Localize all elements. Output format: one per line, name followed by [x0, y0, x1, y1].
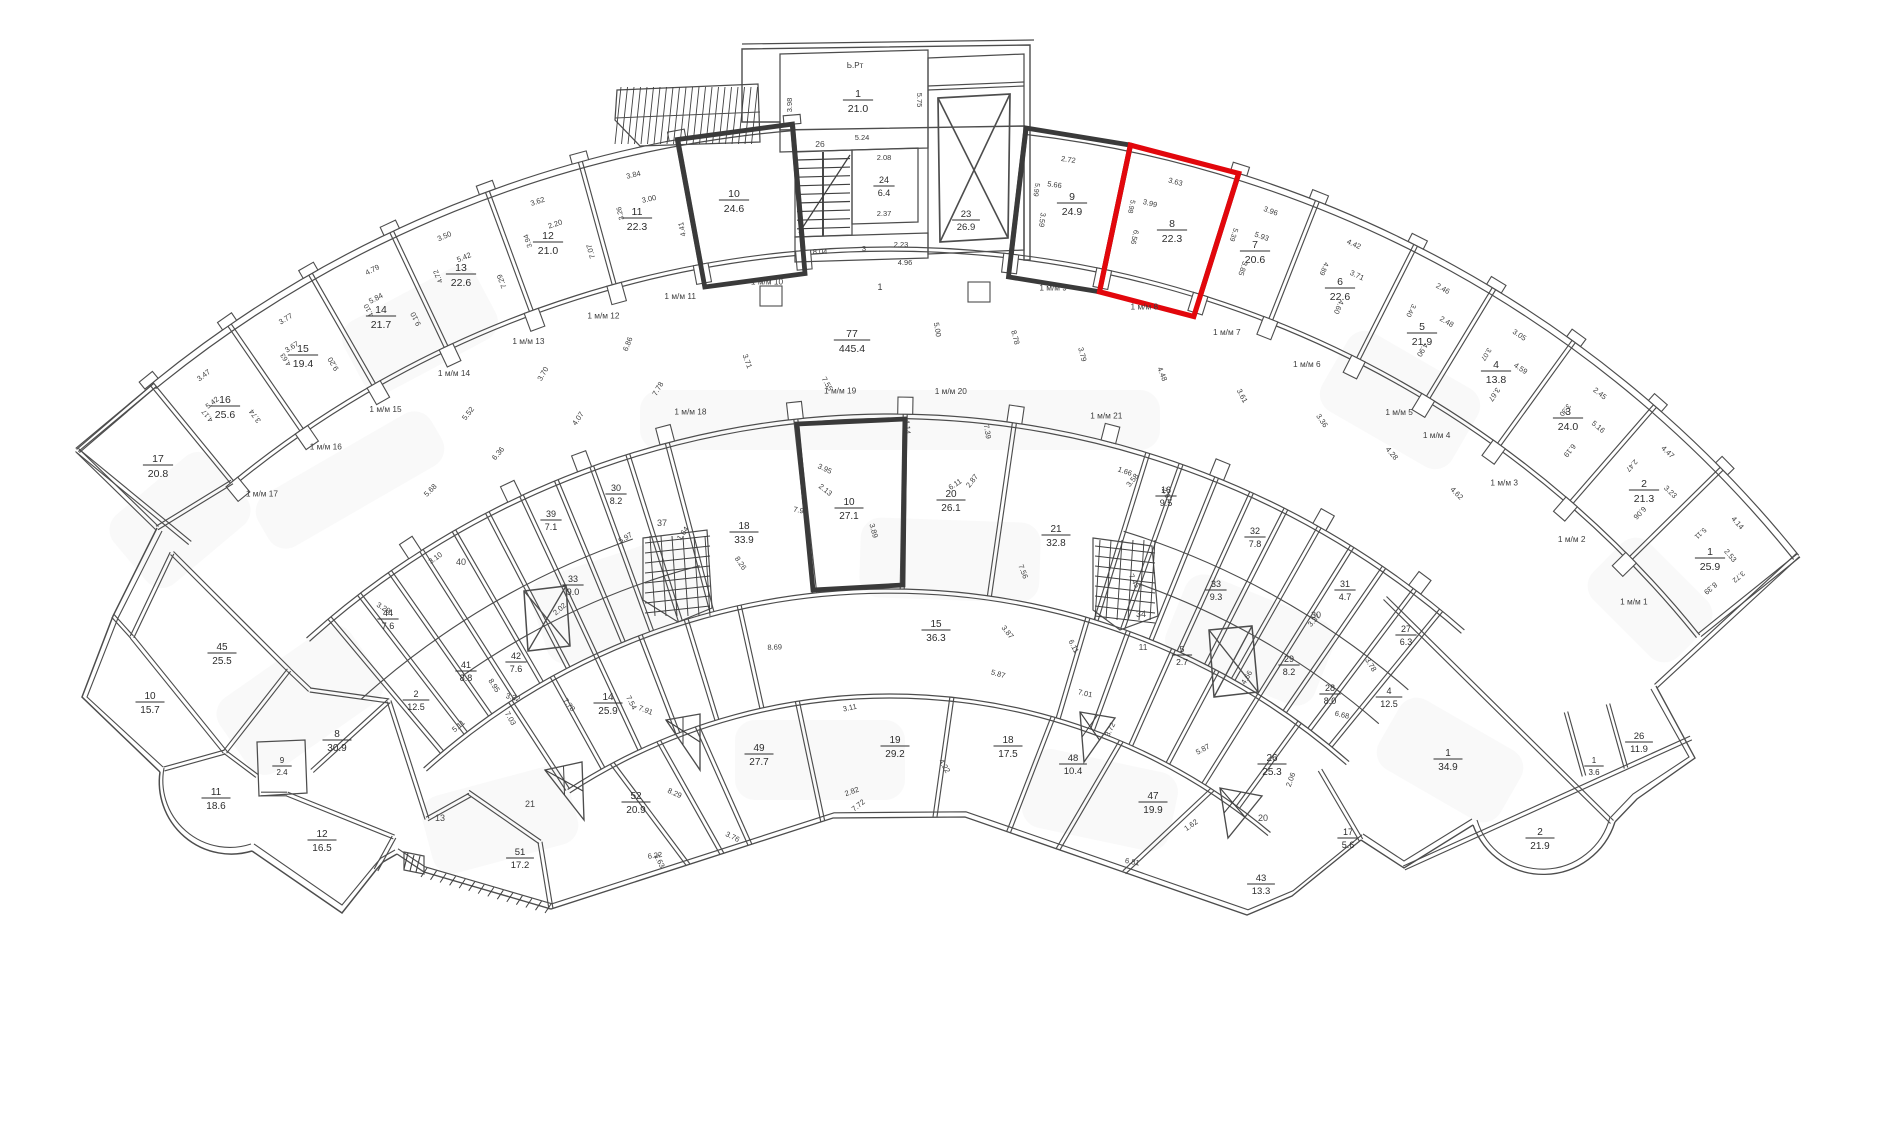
svg-text:1: 1: [1707, 546, 1713, 558]
svg-text:5.24: 5.24: [855, 133, 870, 142]
svg-text:22.6: 22.6: [451, 277, 472, 289]
svg-text:20.9: 20.9: [626, 805, 646, 816]
svg-text:42: 42: [511, 651, 521, 661]
svg-text:34.9: 34.9: [1438, 762, 1458, 773]
svg-text:77: 77: [846, 328, 858, 340]
svg-text:32.8: 32.8: [1046, 538, 1066, 549]
svg-text:6: 6: [1337, 276, 1343, 288]
svg-text:1 м/м 10: 1 м/м 10: [751, 277, 784, 287]
svg-text:28: 28: [1325, 683, 1335, 693]
svg-text:445.4: 445.4: [839, 343, 865, 355]
svg-text:2: 2: [1641, 478, 1647, 490]
svg-text:31: 31: [1340, 579, 1350, 589]
svg-text:1 м/м 1: 1 м/м 1: [1620, 596, 1648, 606]
svg-text:8.0: 8.0: [1324, 696, 1337, 706]
svg-text:21: 21: [1050, 524, 1062, 535]
svg-text:1: 1: [877, 282, 882, 292]
svg-text:15: 15: [930, 619, 942, 630]
svg-text:20: 20: [1258, 813, 1268, 823]
svg-text:1: 1: [855, 88, 861, 100]
svg-text:36.3: 36.3: [926, 633, 946, 644]
svg-text:18.6: 18.6: [206, 801, 226, 812]
svg-text:11: 11: [211, 787, 222, 798]
svg-text:7.8: 7.8: [1249, 539, 1262, 549]
svg-text:8.69: 8.69: [767, 642, 782, 652]
svg-text:34: 34: [1136, 609, 1146, 619]
svg-text:21.9: 21.9: [1530, 841, 1550, 852]
svg-text:8: 8: [1169, 218, 1175, 230]
svg-text:39: 39: [546, 509, 556, 519]
svg-text:1 м/м 3: 1 м/м 3: [1490, 478, 1518, 488]
svg-text:3.6: 3.6: [1588, 768, 1600, 777]
svg-text:22.3: 22.3: [1162, 233, 1183, 245]
svg-text:9: 9: [280, 756, 285, 765]
svg-text:21.7: 21.7: [371, 319, 392, 331]
svg-text:14: 14: [375, 304, 387, 316]
svg-text:1 м/м 6: 1 м/м 6: [1293, 359, 1321, 369]
svg-text:49: 49: [753, 743, 765, 754]
svg-text:13.3: 13.3: [1252, 886, 1271, 897]
svg-text:12: 12: [316, 829, 328, 840]
svg-text:29: 29: [1284, 654, 1294, 664]
svg-text:1 м/м 13: 1 м/м 13: [512, 336, 545, 346]
svg-text:19.9: 19.9: [1143, 805, 1163, 816]
svg-text:1 м/м 18: 1 м/м 18: [674, 407, 707, 417]
svg-text:24.9: 24.9: [1062, 206, 1083, 218]
svg-text:5: 5: [1180, 644, 1185, 654]
svg-text:19: 19: [889, 735, 901, 746]
svg-text:19.4: 19.4: [293, 358, 314, 370]
svg-text:9.0: 9.0: [567, 587, 580, 597]
svg-text:1 м/м 2: 1 м/м 2: [1558, 534, 1586, 544]
svg-text:1 м/м 20: 1 м/м 20: [935, 386, 968, 396]
svg-text:23: 23: [961, 209, 972, 220]
svg-text:43: 43: [1256, 873, 1267, 884]
svg-text:17.5: 17.5: [998, 749, 1018, 760]
svg-text:21.0: 21.0: [848, 103, 869, 115]
svg-text:22.3: 22.3: [627, 221, 648, 233]
svg-text:7.1: 7.1: [545, 522, 558, 532]
svg-text:8.2: 8.2: [1283, 667, 1296, 677]
svg-text:1 м/м 16: 1 м/м 16: [310, 442, 343, 452]
svg-text:Ь.Рт: Ь.Рт: [847, 61, 864, 70]
svg-text:15.7: 15.7: [140, 705, 160, 716]
svg-text:1 м/м 21: 1 м/м 21: [1090, 411, 1123, 421]
svg-text:10: 10: [144, 691, 156, 702]
svg-text:10: 10: [728, 188, 740, 200]
svg-text:7.6: 7.6: [382, 621, 395, 631]
svg-text:21.0: 21.0: [538, 245, 559, 257]
svg-text:4: 4: [1386, 686, 1391, 696]
svg-text:8: 8: [334, 729, 340, 740]
svg-text:25.5: 25.5: [212, 656, 232, 667]
svg-text:5.6: 5.6: [1342, 840, 1355, 850]
svg-text:21.3: 21.3: [1634, 493, 1655, 505]
svg-text:24: 24: [879, 175, 889, 185]
svg-text:1 м/м 14: 1 м/м 14: [438, 368, 471, 378]
svg-text:5.75: 5.75: [915, 93, 924, 108]
svg-text:8.8: 8.8: [460, 673, 473, 683]
svg-text:11.9: 11.9: [1630, 744, 1648, 755]
svg-text:25.9: 25.9: [598, 706, 618, 717]
svg-text:4.96: 4.96: [898, 258, 913, 267]
svg-text:2.4: 2.4: [276, 768, 288, 777]
svg-text:9: 9: [1069, 191, 1075, 203]
svg-text:2: 2: [413, 689, 418, 699]
svg-text:10: 10: [843, 497, 855, 508]
svg-text:5: 5: [1419, 321, 1425, 333]
svg-text:1 м/м 15: 1 м/м 15: [369, 404, 402, 414]
svg-text:33.9: 33.9: [734, 535, 754, 546]
svg-text:7.6: 7.6: [510, 664, 523, 674]
svg-text:17: 17: [152, 453, 164, 465]
svg-text:3: 3: [862, 244, 866, 253]
svg-text:21: 21: [525, 799, 535, 809]
svg-text:26: 26: [815, 139, 825, 149]
svg-text:18: 18: [738, 521, 750, 532]
svg-text:7: 7: [1252, 239, 1258, 251]
svg-text:25.6: 25.6: [215, 409, 236, 421]
svg-text:6.4: 6.4: [878, 188, 891, 198]
svg-text:52: 52: [630, 791, 642, 802]
svg-text:30.9: 30.9: [327, 743, 347, 754]
svg-text:45: 45: [216, 642, 228, 653]
svg-text:51: 51: [515, 847, 526, 858]
svg-text:11: 11: [632, 206, 643, 218]
svg-text:1 м/м 7: 1 м/м 7: [1213, 327, 1241, 337]
svg-text:26: 26: [1634, 731, 1645, 742]
svg-text:1 м/м 5: 1 м/м 5: [1385, 407, 1413, 417]
svg-text:29.2: 29.2: [885, 749, 905, 760]
svg-text:8.2: 8.2: [610, 496, 623, 506]
svg-text:11: 11: [1139, 642, 1148, 652]
svg-text:16: 16: [219, 394, 231, 406]
svg-text:2: 2: [1537, 827, 1543, 838]
svg-text:1 м/м 8: 1 м/м 8: [1131, 302, 1159, 312]
svg-text:20.8: 20.8: [148, 468, 169, 480]
svg-text:10.4: 10.4: [1064, 766, 1083, 777]
svg-text:12.5: 12.5: [1380, 699, 1398, 709]
svg-text:1 м/м 12: 1 м/м 12: [587, 311, 620, 321]
svg-text:32: 32: [1250, 526, 1260, 536]
svg-text:47: 47: [1147, 791, 1159, 802]
svg-text:13: 13: [455, 262, 467, 274]
svg-text:1 м/м 4: 1 м/м 4: [1423, 430, 1451, 440]
svg-text:26.9: 26.9: [957, 222, 976, 233]
svg-text:14: 14: [602, 692, 614, 703]
svg-text:27.7: 27.7: [749, 757, 769, 768]
svg-text:9.3: 9.3: [1210, 592, 1223, 602]
svg-text:4: 4: [1493, 359, 1499, 371]
svg-text:26: 26: [1266, 753, 1278, 764]
svg-text:1 м/м 11: 1 м/м 11: [664, 291, 696, 301]
svg-text:13.8: 13.8: [1486, 374, 1507, 386]
svg-text:27.1: 27.1: [839, 511, 859, 522]
svg-text:1 м/м 9: 1 м/м 9: [1039, 282, 1067, 292]
svg-text:12: 12: [542, 230, 554, 242]
svg-text:25.9: 25.9: [1700, 561, 1721, 573]
svg-text:2.08: 2.08: [877, 153, 892, 162]
svg-text:17.2: 17.2: [511, 860, 530, 871]
svg-text:16.5: 16.5: [312, 843, 332, 854]
svg-text:1: 1: [1445, 748, 1451, 759]
svg-text:40: 40: [456, 557, 466, 567]
svg-text:1: 1: [1592, 756, 1597, 765]
svg-text:25.3: 25.3: [1262, 767, 1282, 778]
svg-text:1 м/м 17: 1 м/м 17: [246, 488, 279, 498]
svg-text:18: 18: [1002, 735, 1014, 746]
svg-text:12.5: 12.5: [407, 702, 425, 712]
svg-text:48: 48: [1068, 753, 1079, 764]
svg-text:4.7: 4.7: [1339, 592, 1352, 602]
svg-text:24.6: 24.6: [724, 203, 745, 215]
svg-text:24.0: 24.0: [1558, 421, 1579, 433]
svg-text:2.7: 2.7: [1176, 657, 1188, 667]
svg-text:13: 13: [435, 813, 445, 823]
svg-text:37: 37: [657, 518, 667, 528]
svg-text:33: 33: [568, 574, 578, 584]
svg-text:2.23: 2.23: [894, 240, 909, 249]
svg-text:30: 30: [611, 483, 621, 493]
svg-text:41: 41: [461, 660, 471, 670]
svg-text:6.3: 6.3: [1400, 637, 1413, 647]
svg-text:3.98: 3.98: [785, 98, 794, 113]
svg-text:33: 33: [1211, 579, 1221, 589]
svg-text:2.37: 2.37: [877, 209, 892, 218]
svg-text:26.1: 26.1: [941, 503, 961, 514]
svg-text:8.04: 8.04: [813, 247, 828, 256]
